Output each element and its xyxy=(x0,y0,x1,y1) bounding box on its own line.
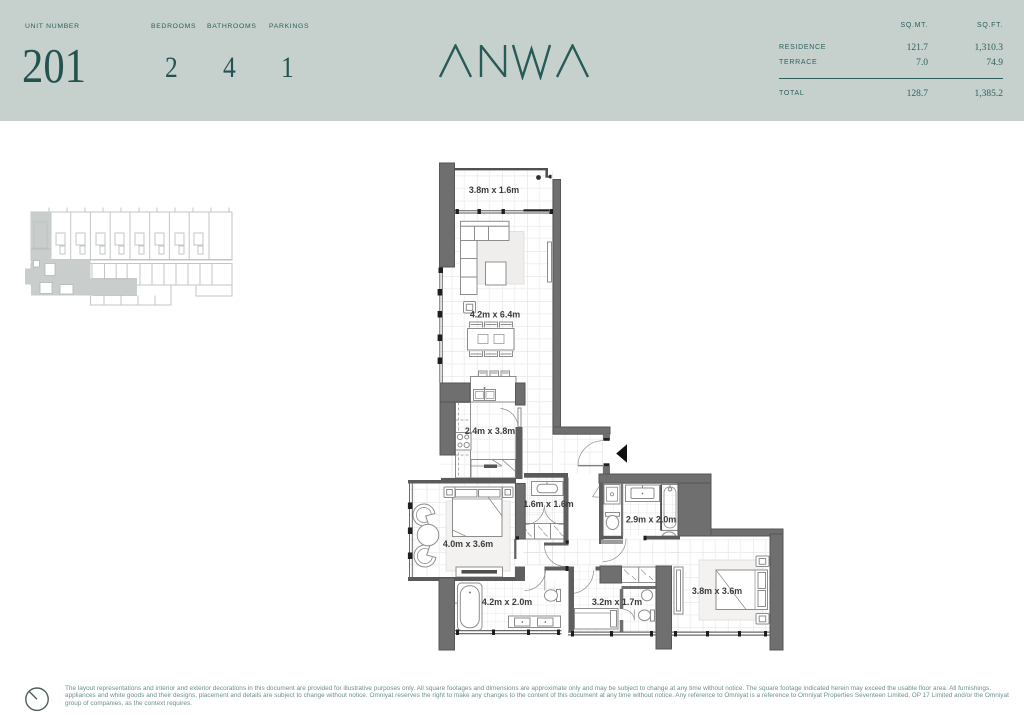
svg-text:3.8m x 3.6m: 3.8m x 3.6m xyxy=(692,586,742,596)
svg-text:4.2m x 2.0m: 4.2m x 2.0m xyxy=(482,597,532,607)
svg-text:4.2m x 6.4m: 4.2m x 6.4m xyxy=(470,310,520,320)
svg-text:3.8m x 1.6m: 3.8m x 1.6m xyxy=(469,185,519,195)
svg-text:3.2m x 1.7m: 3.2m x 1.7m xyxy=(592,597,642,607)
svg-text:4.0m x 3.6m: 4.0m x 3.6m xyxy=(443,539,493,549)
svg-text:2.9m x 2.0m: 2.9m x 2.0m xyxy=(626,515,676,525)
svg-text:1.6m x 1.6m: 1.6m x 1.6m xyxy=(523,499,573,509)
svg-text:2.4m x 3.8m: 2.4m x 3.8m xyxy=(465,426,515,436)
